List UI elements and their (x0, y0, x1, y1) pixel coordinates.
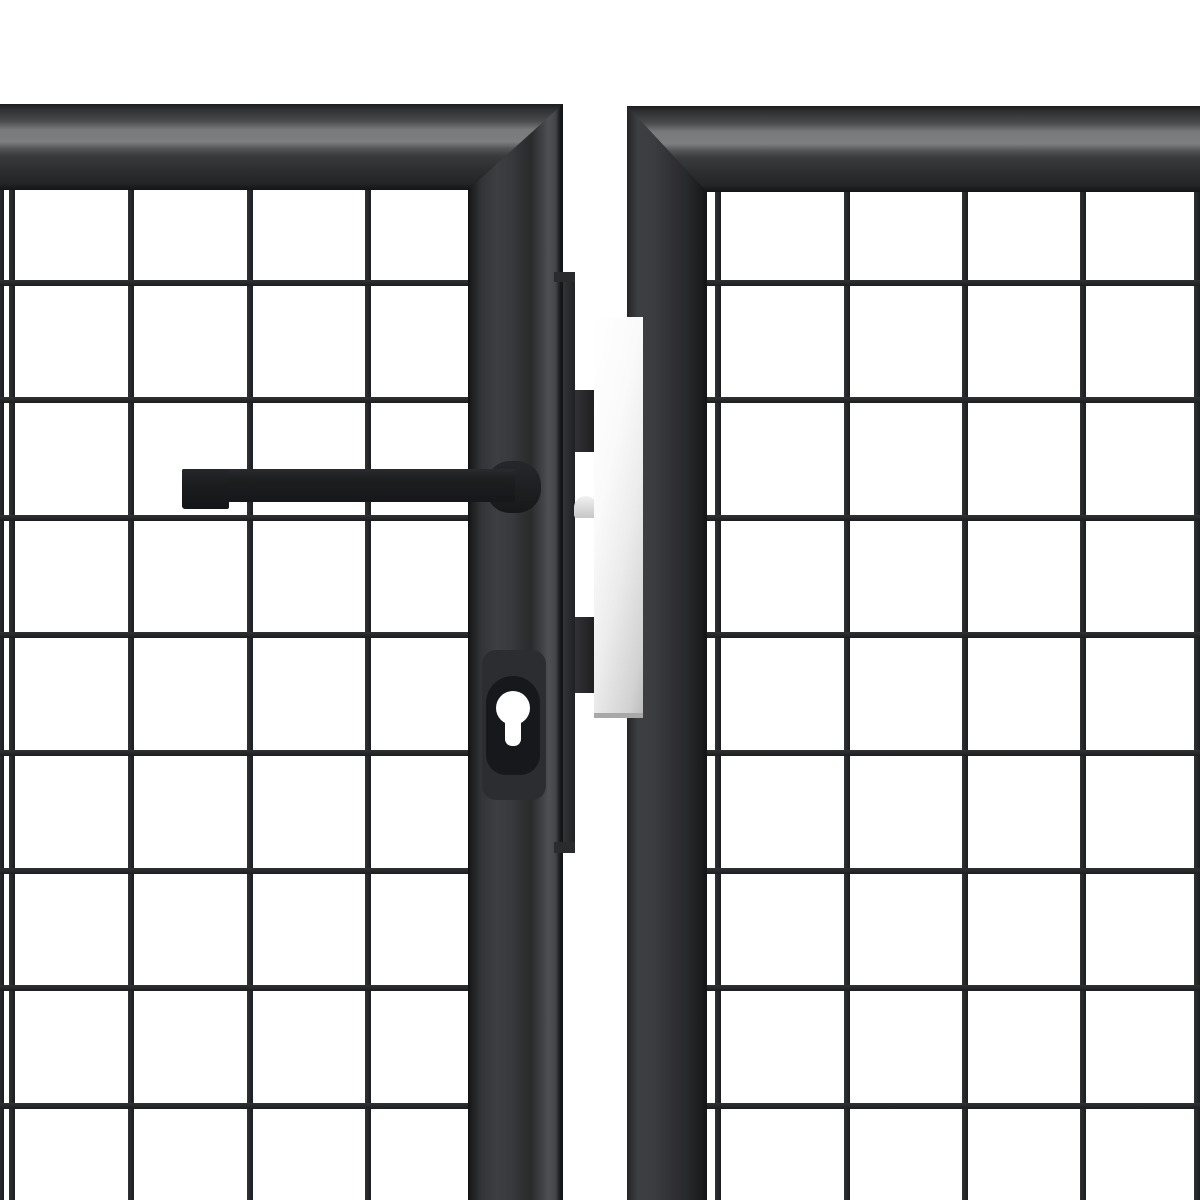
left-panel-mesh-wire-v (247, 190, 253, 1200)
keyhole-hole-slot (505, 712, 521, 746)
latch-tab-lower (575, 617, 594, 693)
right-panel-mesh-wire-v (715, 192, 721, 1200)
right-panel-mesh-wire-h (703, 750, 1200, 756)
left-panel-mesh-wire-v (9, 190, 15, 1200)
left-panel-mesh-wire-h (0, 1103, 474, 1109)
left-panel-mesh-wire-h (0, 280, 474, 286)
left-panel-mesh-wire-v (128, 190, 134, 1200)
top-rail (627, 106, 1200, 192)
end-cap (182, 469, 229, 509)
left-panel-mesh-wire-h (0, 985, 474, 991)
right-panel-mesh-wire-h (703, 280, 1200, 286)
latch-plate-bottom-edge (594, 713, 643, 718)
right-panel-mesh-wire-v (1080, 192, 1086, 1200)
right-panel-mesh-wire-h (703, 868, 1200, 874)
right-panel-mesh-wire-h (703, 397, 1200, 403)
left-panel-mesh-wire-h (0, 868, 474, 874)
left-panel-mesh-wire-h (0, 750, 474, 756)
latch-plate (594, 317, 643, 718)
right-panel-mesh-wire-v (844, 192, 850, 1200)
right-panel-mesh-wire-h (703, 985, 1200, 991)
top-rail (0, 104, 563, 190)
right-panel-mesh-wire-h (703, 1103, 1200, 1109)
right-panel-mesh-wire-v (1194, 192, 1200, 1200)
left-panel-mesh-wire-h (0, 397, 474, 403)
left-panel-mesh-wire-v (0, 190, 4, 1200)
latch-tab-upper (575, 390, 594, 452)
left-panel-mesh-wire-h (0, 515, 474, 521)
left-panel-mesh-wire-v (365, 190, 371, 1200)
keeper-strip (563, 272, 575, 853)
left-panel-mesh-wire-h (0, 632, 474, 638)
right-panel-mesh-wire-v (962, 192, 968, 1200)
strip-cap-bottom (554, 842, 575, 853)
bar (182, 469, 515, 502)
strip-cap-top (554, 272, 575, 282)
right-panel-mesh-wire-h (703, 632, 1200, 638)
right-panel-mesh-wire-h (703, 515, 1200, 521)
gate-product-photo (0, 0, 1200, 1200)
